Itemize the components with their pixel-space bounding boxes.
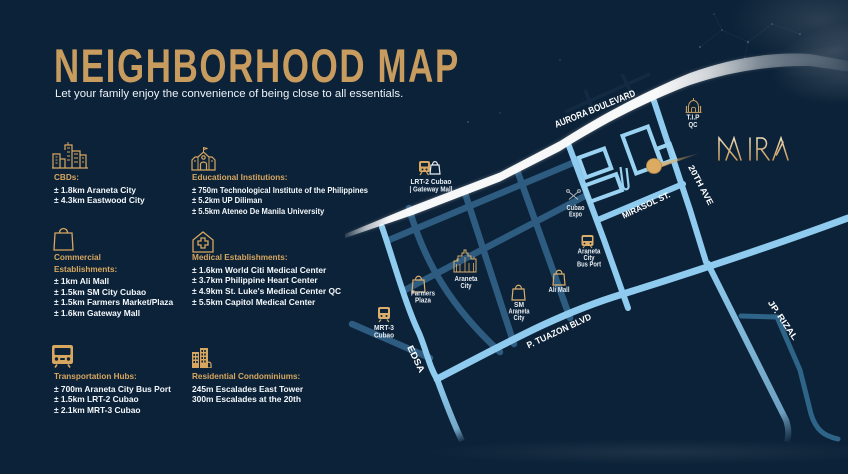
svg-text:T.I.P: T.I.P [687, 115, 700, 122]
svg-text:MRT-3: MRT-3 [374, 325, 394, 332]
svg-text:Cubao: Cubao [374, 333, 394, 340]
svg-text:Expo: Expo [569, 212, 582, 219]
svg-text:Araneta: Araneta [455, 276, 478, 283]
svg-text:City: City [461, 283, 472, 290]
svg-text:| Gateway Mall: | Gateway Mall [410, 187, 453, 194]
svg-text:Ali Mall: Ali Mall [549, 287, 570, 294]
svg-text:20TH AVE: 20TH AVE [686, 163, 716, 207]
svg-text:LRT-2 Cubao: LRT-2 Cubao [411, 179, 452, 186]
svg-text:Farmers: Farmers [411, 291, 435, 298]
svg-text:QC: QC [689, 122, 698, 129]
svg-text:City: City [514, 315, 525, 322]
svg-text:Plaza: Plaza [415, 298, 431, 305]
svg-text:Bus Port: Bus Port [577, 262, 602, 269]
